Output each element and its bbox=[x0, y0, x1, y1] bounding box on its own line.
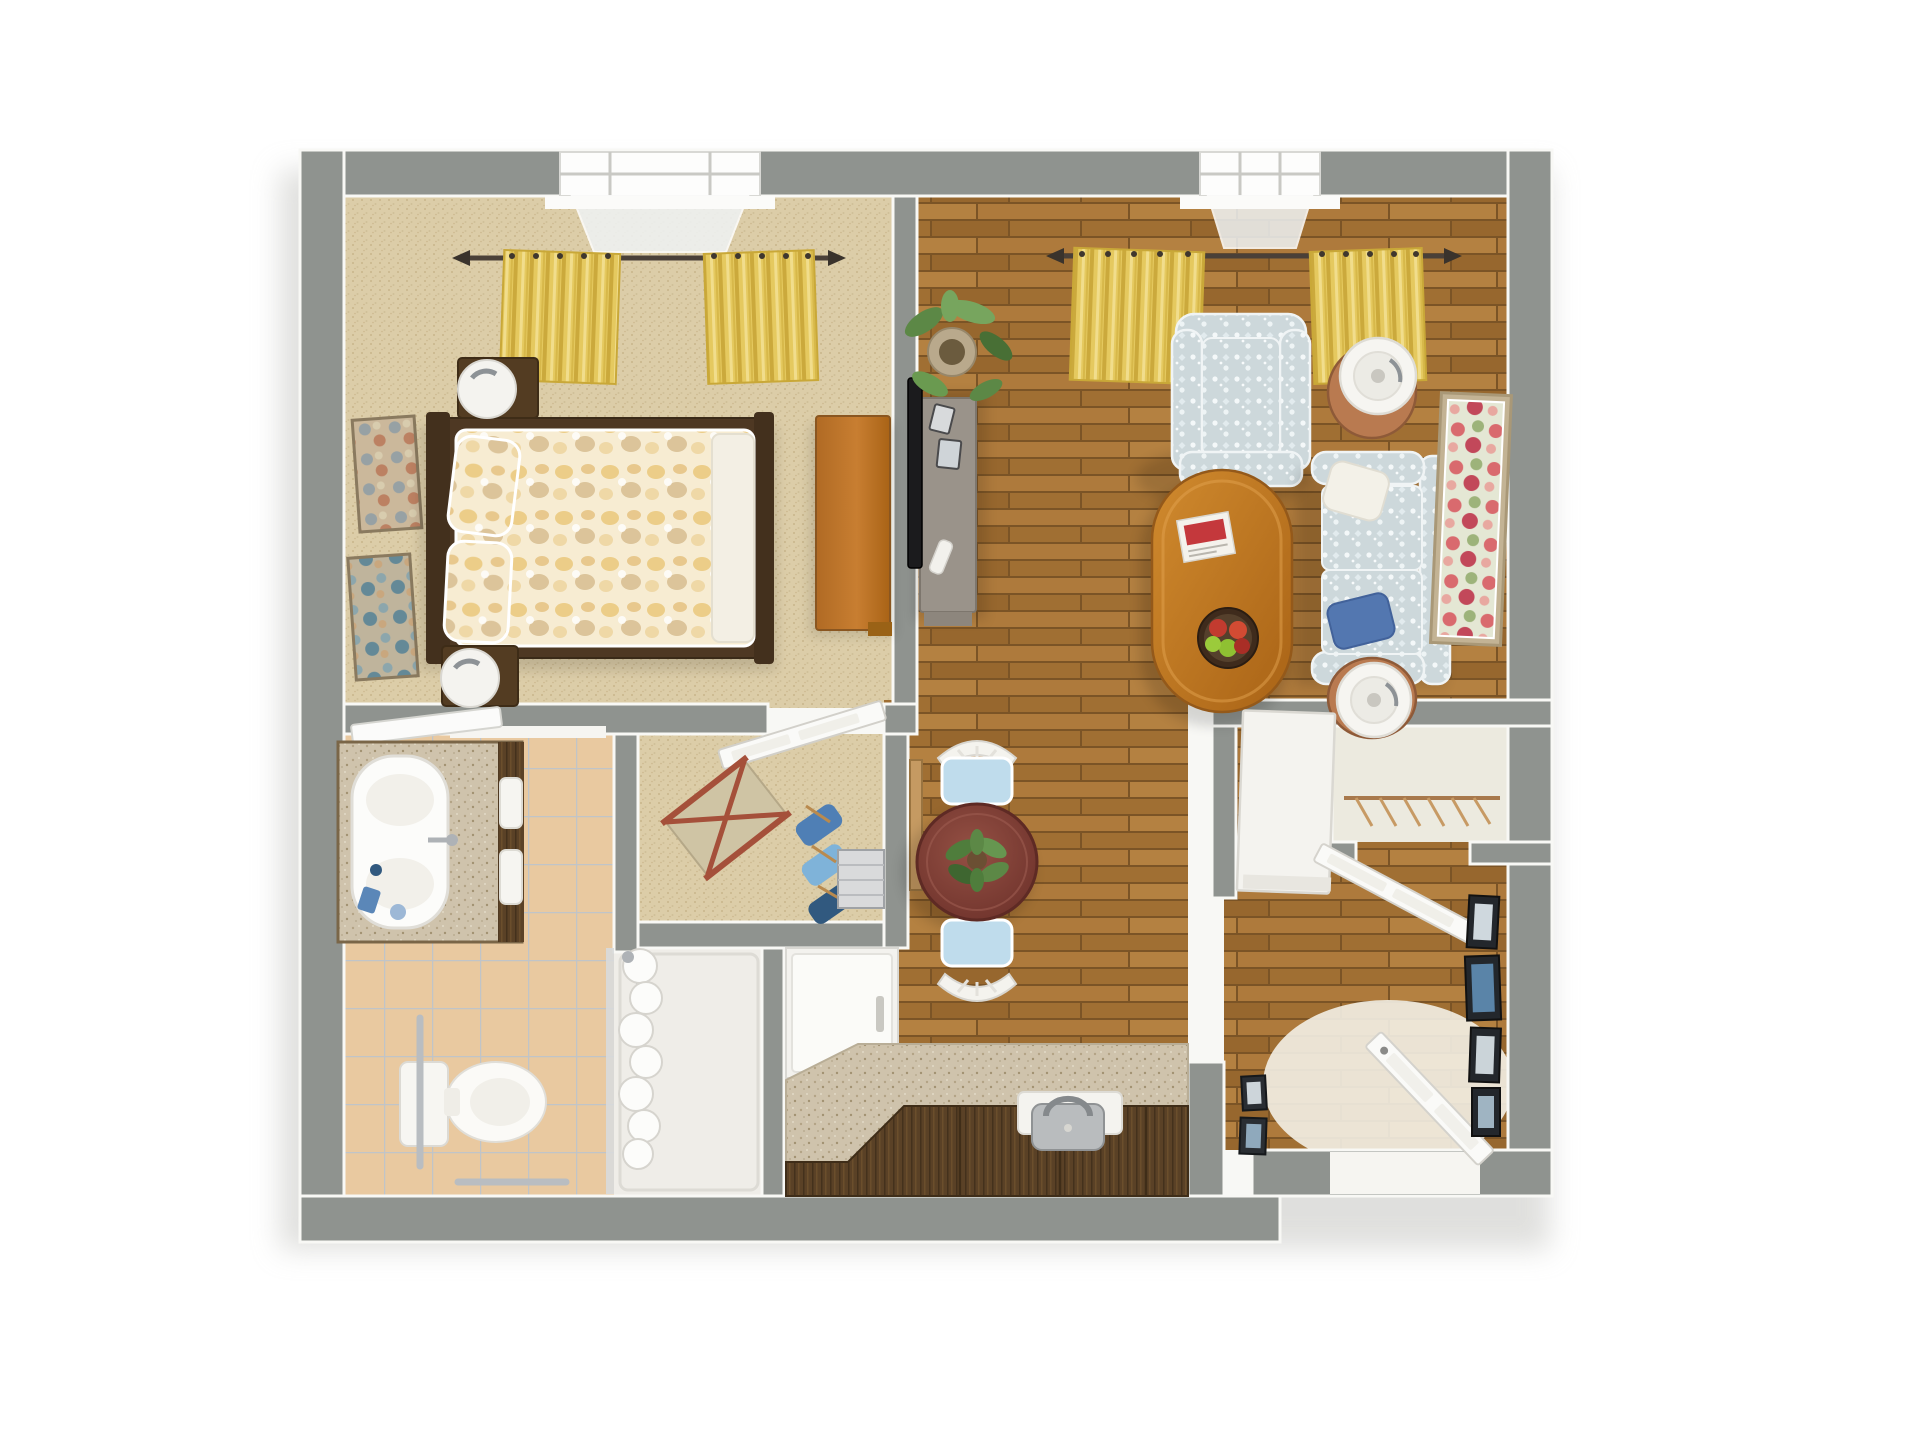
vanity-cabinet-side bbox=[498, 742, 524, 942]
wall-left bbox=[300, 150, 344, 1242]
chair-cushion bbox=[942, 758, 1012, 804]
vanity bbox=[338, 742, 524, 942]
shower-glass-partition bbox=[606, 948, 614, 1194]
photo-frame bbox=[937, 439, 962, 469]
lamp-finial bbox=[1371, 369, 1385, 383]
end-table-lamp-south bbox=[1328, 658, 1416, 738]
wall-bottom-left bbox=[300, 1196, 1280, 1242]
dresser-base bbox=[868, 622, 892, 636]
wall-bedroom-bottom-stub bbox=[884, 704, 917, 734]
picture-print bbox=[1246, 1082, 1261, 1105]
wall-cabinet-nook-left bbox=[1212, 726, 1236, 898]
sofa-group bbox=[1296, 452, 1450, 686]
picture-print bbox=[1471, 964, 1495, 1013]
towel bbox=[500, 850, 522, 904]
storage-cabinet bbox=[1237, 710, 1335, 893]
console-base bbox=[924, 612, 972, 626]
wall-top bbox=[300, 150, 1552, 196]
towel bbox=[500, 778, 522, 828]
footboard bbox=[754, 412, 774, 664]
living-window-sill bbox=[1180, 196, 1340, 209]
picture-print bbox=[1475, 1036, 1494, 1075]
framed-painting bbox=[1431, 393, 1512, 646]
wall-closet-right bbox=[884, 734, 908, 948]
wall-closet-bottom bbox=[638, 922, 888, 948]
toiletries bbox=[370, 864, 382, 876]
toilet-tank bbox=[400, 1062, 448, 1146]
bedroom-window-sill bbox=[545, 196, 775, 209]
dresser bbox=[816, 416, 890, 630]
toiletries bbox=[390, 904, 406, 920]
chair-cushion bbox=[942, 920, 1012, 966]
wall-art-canvas-2 bbox=[348, 554, 418, 680]
picture-print bbox=[1478, 1096, 1494, 1128]
sink-drain bbox=[1064, 1124, 1072, 1132]
wall-right bbox=[1508, 150, 1552, 1196]
refrigerator-handle bbox=[876, 996, 884, 1032]
picture-print bbox=[1473, 904, 1493, 941]
wire-rack bbox=[838, 850, 884, 908]
wall-art-canvas-1 bbox=[352, 416, 422, 532]
armchair-seat bbox=[1202, 338, 1280, 456]
magazine bbox=[1177, 512, 1236, 562]
toilet-hinge bbox=[444, 1088, 460, 1116]
shower-head bbox=[622, 951, 634, 963]
armchair-arm bbox=[1280, 330, 1310, 470]
bedroom-curtain-right bbox=[704, 250, 818, 384]
lamp-finial bbox=[1367, 693, 1381, 707]
tv bbox=[908, 378, 922, 568]
armchair-arm bbox=[1172, 330, 1202, 470]
coffee-table-group bbox=[1140, 470, 1292, 726]
wall-bathroom-closet-divider bbox=[614, 734, 638, 952]
wall-kitchen-end bbox=[1188, 1062, 1224, 1196]
floor-plan bbox=[0, 0, 1920, 1440]
front-doorway-opening bbox=[1330, 1152, 1480, 1194]
bed bbox=[426, 412, 774, 664]
basin-bowl bbox=[366, 774, 434, 826]
toilet-seat bbox=[470, 1078, 530, 1126]
pillow bbox=[443, 540, 512, 643]
fruit-bowl bbox=[1198, 608, 1258, 668]
painting-canvas bbox=[1438, 400, 1504, 638]
plant-soil bbox=[939, 339, 965, 365]
wall-shower-kitchen-divider bbox=[762, 948, 784, 1196]
wall-hall-closet-bottom-b bbox=[1470, 842, 1552, 864]
pillow bbox=[446, 434, 521, 537]
picture-print bbox=[1246, 1124, 1262, 1149]
dining-chair-south bbox=[938, 920, 1016, 1001]
duvet-fold bbox=[712, 434, 754, 642]
sphere-lamp bbox=[441, 649, 499, 707]
dining-chair-north bbox=[938, 741, 1016, 804]
